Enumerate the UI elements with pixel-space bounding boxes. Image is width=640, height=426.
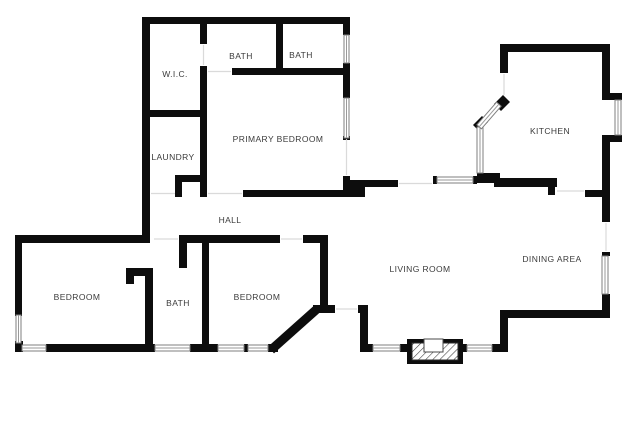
window xyxy=(344,35,349,63)
window xyxy=(155,345,190,351)
room-label-bedroom-left: BEDROOM xyxy=(54,292,101,302)
room-label-bedroom-right: BEDROOM xyxy=(234,292,281,302)
room-label-bath-top-right: BATH xyxy=(289,50,313,60)
room-label-wic: W.I.C. xyxy=(162,69,188,79)
window xyxy=(16,315,21,343)
room-label-bath-lower: BATH xyxy=(166,298,190,308)
room-label-bath-top-left: BATH xyxy=(229,51,253,61)
window xyxy=(602,256,608,294)
walls xyxy=(15,17,622,352)
room-label-laundry: LAUNDRY xyxy=(151,152,194,162)
window xyxy=(437,177,473,183)
window xyxy=(248,345,268,351)
window xyxy=(344,98,349,138)
window xyxy=(467,345,492,351)
room-label-living-room: LIVING ROOM xyxy=(389,264,450,274)
window xyxy=(615,100,621,135)
room-label-dining-area: DINING AREA xyxy=(522,254,581,264)
window xyxy=(218,345,244,351)
angled-window xyxy=(477,102,501,129)
room-label-primary-bedroom: PRIMARY BEDROOM xyxy=(233,134,324,144)
floor-plan-drawing: W.I.C. BATH BATH PRIMARY BEDROOM LAUNDRY… xyxy=(0,0,640,426)
floor-plan: W.I.C. BATH BATH PRIMARY BEDROOM LAUNDRY… xyxy=(0,0,640,426)
fireplace xyxy=(407,339,463,364)
window xyxy=(477,127,483,173)
window xyxy=(22,345,46,351)
room-label-kitchen: KITCHEN xyxy=(530,126,570,136)
bay-window-wall xyxy=(271,309,317,350)
room-label-hall: HALL xyxy=(219,215,242,225)
door-openings xyxy=(151,45,606,309)
window xyxy=(373,345,400,351)
